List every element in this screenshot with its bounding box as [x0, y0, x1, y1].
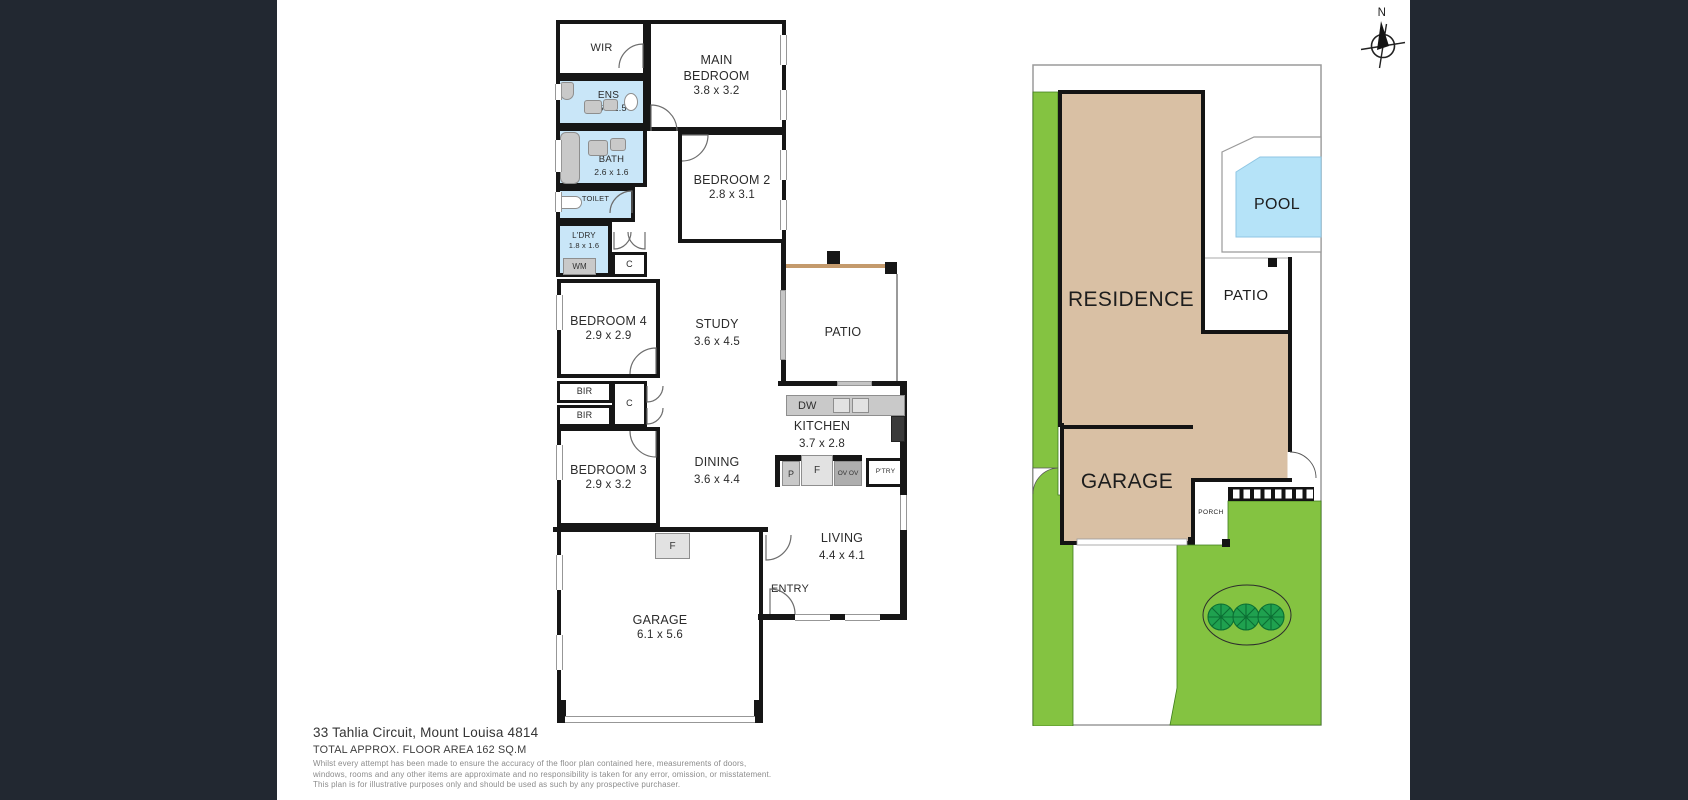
- disclaimer-line2: windows, rooms and any other items are a…: [313, 770, 771, 781]
- left-dark-panel: [0, 0, 277, 800]
- fence-slat: [1296, 490, 1303, 499]
- fence-slat: [1307, 490, 1314, 499]
- compass-north-label: N: [1378, 7, 1387, 19]
- fence-slat: [1286, 490, 1293, 499]
- footer-block: 33 Tahlia Circuit, Mount Louisa 4814 TOT…: [313, 725, 771, 791]
- disclaimer: Whilst every attempt has been made to en…: [313, 759, 771, 791]
- door-arc-bedroom4: [630, 348, 656, 374]
- door-arc-bedroom3: [630, 431, 656, 457]
- site-plan: POOL PATIO: [1032, 64, 1322, 726]
- door-arc-bir2: [647, 408, 663, 424]
- fence-slat: [1254, 490, 1261, 499]
- patio-site-label: PATIO: [1224, 287, 1269, 304]
- door-arcs-layer: [500, 10, 920, 730]
- door-arc-bedroom2: [682, 135, 708, 161]
- door-arc-toilet: [610, 191, 632, 213]
- fence-slat: [1275, 490, 1282, 499]
- garage-site-label: GARAGE: [1081, 470, 1173, 493]
- fence-slat: [1265, 490, 1272, 499]
- pool-site-label: POOL: [1254, 196, 1300, 213]
- garage-door-site: [1077, 539, 1187, 545]
- door-arc-wir: [619, 44, 643, 68]
- disclaimer-line1: Whilst every attempt has been made to en…: [313, 759, 771, 770]
- right-dark-panel: [1410, 0, 1688, 800]
- door-arc-entry: [770, 589, 795, 614]
- tree-icons: [1208, 604, 1284, 630]
- fence-slat: [1233, 490, 1240, 499]
- door-arc-main-bedroom: [651, 105, 677, 131]
- porch-post-2: [1222, 539, 1230, 547]
- porch-post-1: [1188, 537, 1195, 544]
- patio-post-square: [1268, 258, 1277, 267]
- door-arc-living: [766, 535, 791, 560]
- floor-area-text: TOTAL APPROX. FLOOR AREA 162 SQ.M: [313, 744, 771, 756]
- disclaimer-line3: This plan is for illustrative purposes o…: [313, 780, 771, 791]
- fence-slat: [1244, 490, 1251, 499]
- door-arc-bir1: [647, 386, 663, 402]
- residence-label: RESIDENCE: [1068, 288, 1194, 311]
- compass-icon: N: [1352, 2, 1416, 78]
- porch-label: PORCH: [1198, 509, 1223, 516]
- floorplan-page: WIR ENS 2.6 x 1.5 BATH 2.6 x 1.6 TOILET …: [0, 0, 1688, 800]
